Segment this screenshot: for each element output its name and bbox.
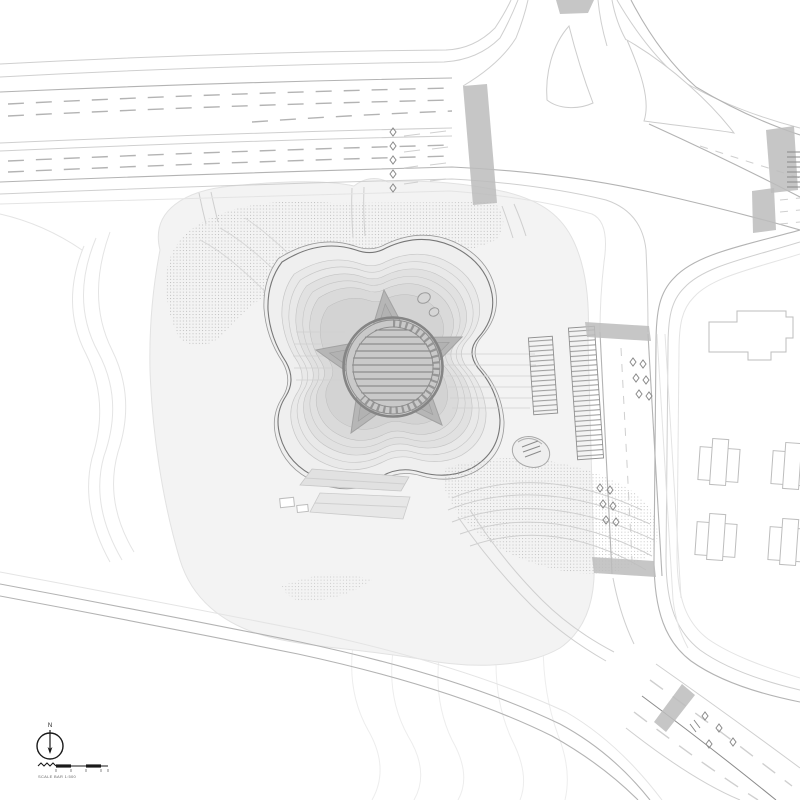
building-footprint — [771, 442, 800, 491]
pedestrian-crossing-east — [766, 126, 798, 193]
north-label: N — [48, 723, 52, 729]
building-footprint — [698, 438, 741, 487]
pedestrian-crossing-street-south — [592, 557, 656, 577]
traffic-island-west — [547, 26, 593, 108]
lane-arrow-markings-southeast — [690, 712, 736, 748]
plaza-landscape — [150, 179, 658, 666]
contour-lines-west — [0, 214, 134, 562]
residential-buildings — [695, 311, 800, 566]
traffic-island-east — [627, 40, 734, 133]
pedestrian-crossing-southeast — [654, 684, 695, 732]
site-plan-canvas: N SCALE BAR 1:500 — [0, 0, 800, 800]
building-footprint-large — [709, 311, 793, 360]
building-footprint — [695, 513, 738, 562]
site-plan-drawing: N SCALE BAR 1:500 — [0, 0, 800, 800]
scale-bar: SCALE BAR 1:500 — [38, 763, 108, 779]
north-arrow: N — [37, 723, 63, 759]
building-footprint — [768, 518, 800, 567]
scale-bar-label: SCALE BAR 1:500 — [38, 774, 77, 779]
east-street — [585, 322, 688, 648]
southeast-road — [626, 664, 800, 800]
median-island-north — [556, 0, 594, 14]
